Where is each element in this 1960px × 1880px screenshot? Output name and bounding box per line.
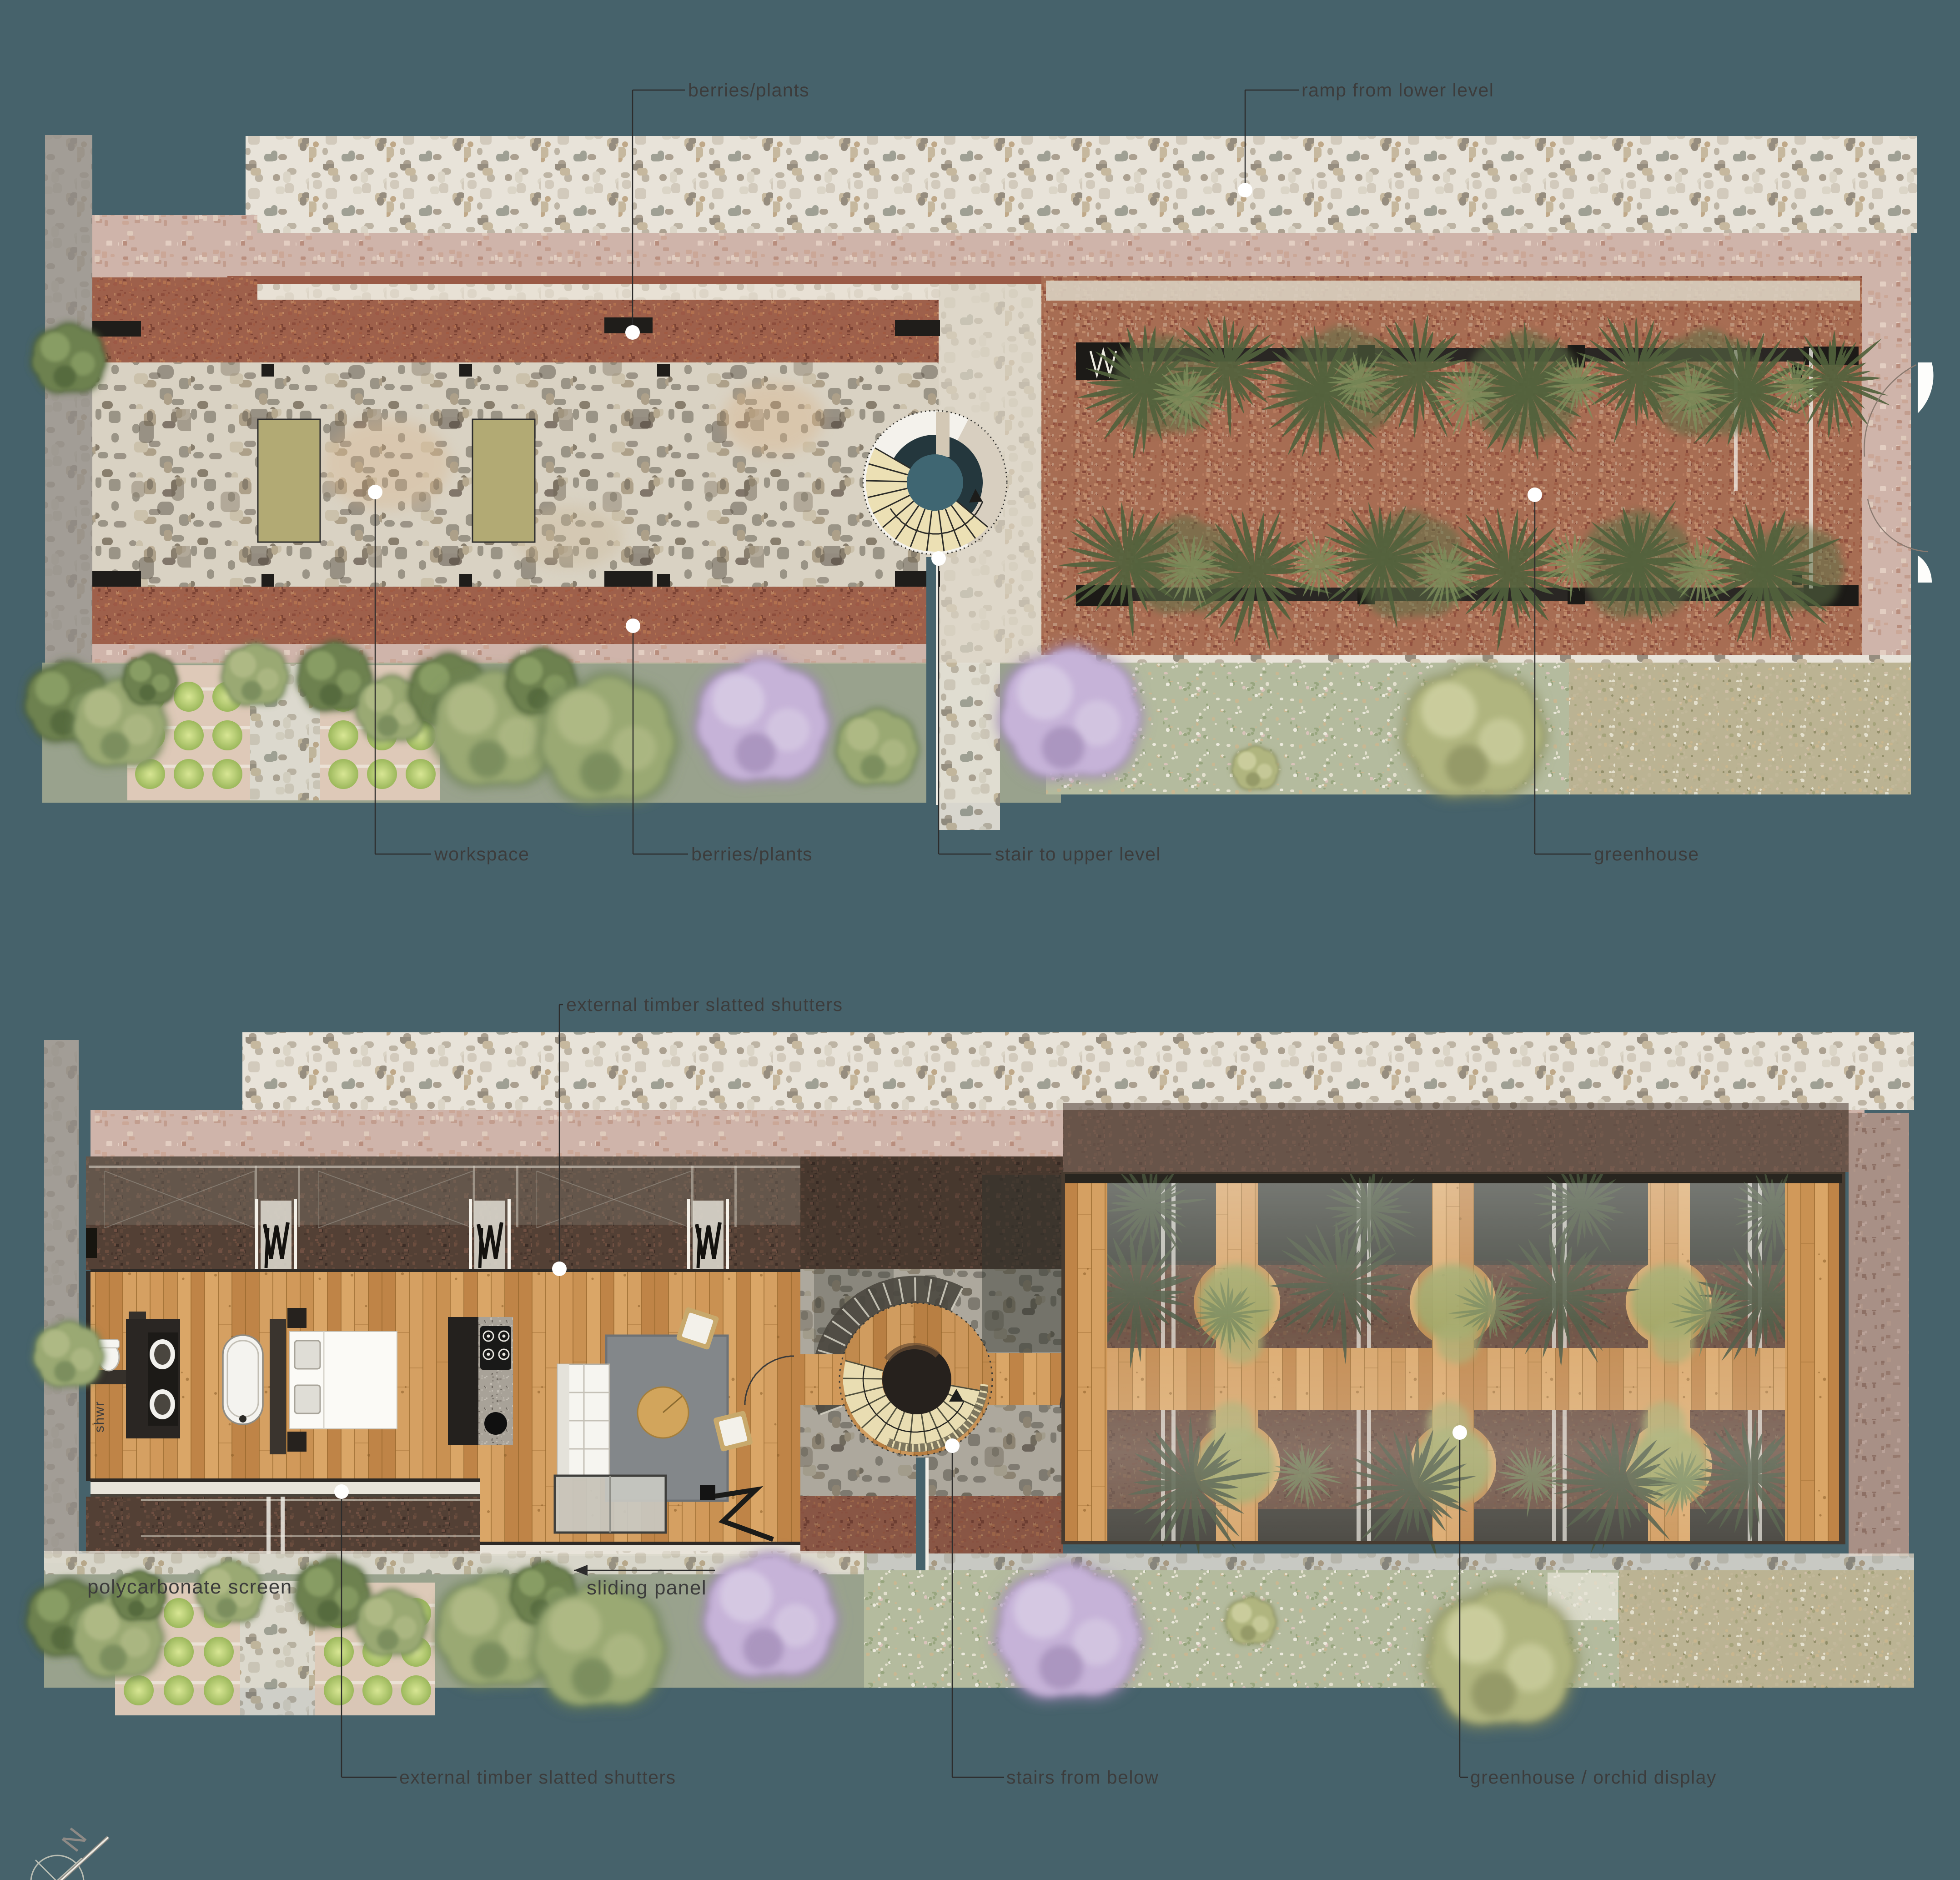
svg-text:stairs from below: stairs from below [1006,1767,1159,1788]
svg-text:polycarbonate screen: polycarbonate screen [87,1576,292,1598]
svg-text:stair to upper level: stair to upper level [995,844,1161,865]
svg-text:external timber slatted shutte: external timber slatted shutters [399,1767,676,1788]
svg-text:greenhouse: greenhouse [1594,844,1699,865]
svg-text:sliding panel: sliding panel [587,1577,707,1599]
svg-text:greenhouse / orchid display: greenhouse / orchid display [1470,1767,1717,1788]
svg-text:ramp from lower level: ramp from lower level [1302,80,1494,101]
svg-text:external timber slatted shutte: external timber slatted shutters [566,994,843,1015]
svg-text:berries/plants: berries/plants [691,844,813,865]
svg-text:berries/plants: berries/plants [688,80,809,101]
svg-text:shwr: shwr [92,1401,107,1433]
svg-text:workspace: workspace [434,844,529,865]
